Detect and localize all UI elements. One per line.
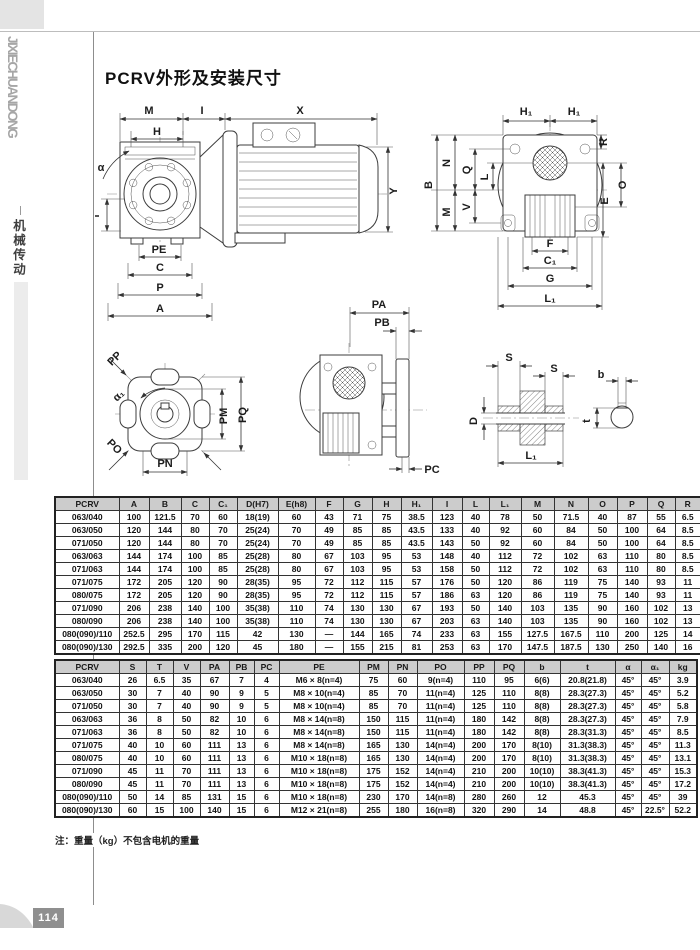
column-header: O — [588, 497, 617, 511]
page-number-badge: 114 — [33, 908, 64, 928]
value-cell: 120 — [489, 589, 521, 602]
value-cell: 95 — [372, 563, 401, 576]
value-cell: 84 — [554, 524, 588, 537]
value-cell: 72 — [315, 589, 343, 602]
value-cell: 50 — [462, 537, 489, 550]
value-cell: 36 — [119, 713, 146, 726]
value-cell: 125 — [647, 628, 675, 641]
value-cell: 90 — [588, 615, 617, 628]
value-cell: 90 — [200, 700, 229, 713]
value-cell: 16 — [675, 641, 700, 655]
value-cell: 3.9 — [669, 674, 697, 687]
value-cell: 102 — [647, 602, 675, 615]
value-cell: 115 — [388, 713, 417, 726]
value-cell: 100 — [181, 563, 209, 576]
value-cell: 210 — [464, 778, 494, 791]
dim-label-n: N — [441, 159, 453, 167]
technical-drawings: M I X H α T Y PE C P A — [95, 95, 700, 495]
value-cell: 60 — [209, 511, 237, 524]
value-cell: — — [315, 641, 343, 655]
value-cell: 200 — [464, 739, 494, 752]
value-cell: 165 — [359, 739, 388, 752]
value-cell: 180 — [278, 641, 315, 655]
model-cell: 071/050 — [55, 700, 119, 713]
table-row: 080(090)/130292.533520012045180—15521581… — [55, 641, 700, 655]
value-cell: 130 — [372, 602, 401, 615]
value-cell: 174 — [149, 550, 181, 563]
value-cell: 13 — [229, 765, 254, 778]
value-cell: M8 × 14(n=8) — [279, 726, 359, 739]
front-view-drawing: M I X H α T Y PE C P A — [95, 105, 400, 321]
table-row: 080(090)/1306015100140156M12 × 21(n=8)25… — [55, 804, 697, 818]
value-cell: 14(n=8) — [417, 791, 464, 804]
model-cell: 063/040 — [55, 511, 119, 524]
value-cell: 152 — [388, 765, 417, 778]
value-cell: 110 — [588, 628, 617, 641]
value-cell: 130 — [388, 752, 417, 765]
value-cell: 155 — [343, 641, 372, 655]
dim-label-m: M — [144, 105, 153, 117]
value-cell: 8(8) — [524, 700, 560, 713]
value-cell: 45° — [615, 778, 641, 791]
side-view-drawing: H₁ H₁ B N M Q V L R E O — [423, 106, 629, 310]
value-cell: 13 — [229, 752, 254, 765]
value-cell: 140 — [489, 602, 521, 615]
value-cell: 45° — [641, 674, 669, 687]
value-cell: 110 — [464, 674, 494, 687]
value-cell: 45° — [615, 765, 641, 778]
value-cell: 115 — [372, 576, 401, 589]
value-cell: 5 — [254, 700, 279, 713]
value-cell: 170 — [489, 641, 521, 655]
value-cell: 92 — [489, 524, 521, 537]
value-cell: 12 — [524, 791, 560, 804]
value-cell: 260 — [494, 791, 524, 804]
dim-label-pa: PA — [372, 299, 387, 311]
value-cell: 15.3 — [669, 765, 697, 778]
value-cell: 160 — [617, 615, 647, 628]
value-cell: 6 — [254, 778, 279, 791]
page-title: PCRV外形及安装尺寸 — [105, 64, 282, 89]
value-cell: 40 — [462, 511, 489, 524]
value-cell: 70 — [181, 511, 209, 524]
value-cell: 140 — [181, 615, 209, 628]
value-cell: 187.5 — [554, 641, 588, 655]
value-cell: 74 — [315, 602, 343, 615]
value-cell: 144 — [119, 563, 149, 576]
value-cell: 11(n=4) — [417, 713, 464, 726]
dim-label-v: V — [461, 203, 473, 211]
value-cell: 130 — [588, 641, 617, 655]
value-cell: 82 — [200, 713, 229, 726]
value-cell: 40 — [588, 511, 617, 524]
mount-flange-drawing: PP α₁ PO PN PM PQ — [104, 349, 249, 476]
value-cell: 72 — [521, 550, 554, 563]
value-cell: 142 — [494, 713, 524, 726]
value-cell: 63 — [462, 628, 489, 641]
value-cell: 38.5 — [401, 511, 432, 524]
dim-label-po: PO — [104, 437, 124, 457]
value-cell: 67 — [315, 550, 343, 563]
value-cell: 111 — [200, 752, 229, 765]
model-cell: 071/063 — [55, 563, 119, 576]
table-row: 071/0751722051209028(35)9572112115571765… — [55, 576, 700, 589]
dim-label-e: E — [599, 197, 611, 204]
value-cell: 5.8 — [669, 700, 697, 713]
dimension-table-1: PCRVABCC₁D(H7)E(h8)FGHH₁ILL₁MNOPQR063/04… — [54, 496, 700, 655]
model-cell: 063/063 — [55, 713, 119, 726]
table-row: 080/09020623814010035(38)110741301306720… — [55, 615, 700, 628]
value-cell: 172 — [119, 576, 149, 589]
value-cell: 335 — [149, 641, 181, 655]
value-cell: 57 — [401, 589, 432, 602]
dim-label-pc: PC — [424, 464, 439, 476]
dim-label-c: C — [156, 262, 164, 274]
value-cell: 120 — [119, 524, 149, 537]
dim-label-m2: M — [441, 207, 453, 216]
dim-label-pp: PP — [105, 349, 124, 368]
value-cell: 11(n=4) — [417, 726, 464, 739]
table-row: 071/075401060111136M8 × 14(n=8)16513014(… — [55, 739, 697, 752]
value-cell: 40 — [462, 550, 489, 563]
value-cell: 28(35) — [237, 589, 278, 602]
value-cell: 39 — [669, 791, 697, 804]
model-cell: 063/040 — [55, 674, 119, 687]
column-header: PC — [254, 660, 279, 674]
value-cell: 172 — [119, 589, 149, 602]
dim-label-s-right: S — [550, 363, 557, 375]
dim-label-pb: PB — [374, 317, 389, 329]
value-cell: 6.5 — [146, 674, 173, 687]
value-cell: 60 — [173, 752, 200, 765]
value-cell: 28.3(27.3) — [560, 713, 615, 726]
column-header: α — [615, 660, 641, 674]
table-row: 080(090)/110501485131156M10 × 18(n=8)230… — [55, 791, 697, 804]
value-cell: 8.5 — [675, 524, 700, 537]
value-cell: 100 — [209, 602, 237, 615]
value-cell: 49 — [315, 524, 343, 537]
value-cell: 85 — [173, 791, 200, 804]
value-cell: 100 — [173, 804, 200, 818]
value-cell: — — [315, 628, 343, 641]
value-cell: 60 — [521, 537, 554, 550]
value-cell: 133 — [432, 524, 462, 537]
model-cell: 063/050 — [55, 687, 119, 700]
value-cell: 86 — [521, 589, 554, 602]
value-cell: 45 — [119, 765, 146, 778]
value-cell: 206 — [119, 615, 149, 628]
value-cell: 45° — [615, 700, 641, 713]
value-cell: 50 — [119, 791, 146, 804]
value-cell: 11.3 — [669, 739, 697, 752]
value-cell: 50 — [462, 563, 489, 576]
value-cell: 147.5 — [521, 641, 554, 655]
value-cell: 28.3(27.3) — [560, 687, 615, 700]
value-cell: 253 — [432, 641, 462, 655]
dim-label-l: L — [479, 173, 491, 180]
value-cell: 45° — [615, 674, 641, 687]
dim-label-h1-right: H₁ — [568, 106, 581, 118]
column-header: H — [372, 497, 401, 511]
table-row: 080(090)/110252.529517011542130—14416574… — [55, 628, 700, 641]
value-cell: 10 — [146, 739, 173, 752]
value-cell: 120 — [489, 576, 521, 589]
model-cell: 071/050 — [55, 537, 119, 550]
value-cell: 35(38) — [237, 615, 278, 628]
top-rule — [0, 31, 700, 32]
value-cell: 123 — [432, 511, 462, 524]
value-cell: 14(n=4) — [417, 778, 464, 791]
value-cell: 8 — [146, 726, 173, 739]
value-cell: 75 — [359, 674, 388, 687]
value-cell: 193 — [432, 602, 462, 615]
value-cell: 170 — [494, 752, 524, 765]
value-cell: 35 — [173, 674, 200, 687]
dim-label-pe: PE — [152, 244, 167, 256]
value-cell: 40 — [119, 752, 146, 765]
column-header: Q — [647, 497, 675, 511]
value-cell: 81 — [401, 641, 432, 655]
value-cell: 95 — [278, 589, 315, 602]
value-cell: 250 — [617, 641, 647, 655]
value-cell: M8 × 14(n=8) — [279, 739, 359, 752]
header-row: PCRVABCC₁D(H7)E(h8)FGHH₁ILL₁MNOPQR — [55, 497, 700, 511]
value-cell: 5 — [254, 687, 279, 700]
value-cell: 93 — [647, 589, 675, 602]
value-cell: 63 — [462, 641, 489, 655]
value-cell: 50 — [521, 511, 554, 524]
table-row: 080/090451170111136M10 × 18(n=8)17515214… — [55, 778, 697, 791]
model-cell: 063/050 — [55, 524, 119, 537]
value-cell: 180 — [464, 713, 494, 726]
value-cell: 115 — [209, 628, 237, 641]
value-cell: 53 — [401, 563, 432, 576]
value-cell: 13 — [229, 739, 254, 752]
value-cell: 144 — [149, 524, 181, 537]
value-cell: 36 — [119, 726, 146, 739]
value-cell: 135 — [554, 615, 588, 628]
value-cell: 148 — [432, 550, 462, 563]
value-cell: 28(35) — [237, 576, 278, 589]
value-cell: 70 — [209, 537, 237, 550]
value-cell: 10(10) — [524, 765, 560, 778]
value-cell: 110 — [278, 602, 315, 615]
value-cell: 82 — [200, 726, 229, 739]
model-cell: 080(090)/130 — [55, 641, 119, 655]
column-header: kg — [669, 660, 697, 674]
value-cell: 26 — [119, 674, 146, 687]
model-cell: 071/063 — [55, 726, 119, 739]
value-cell: 102 — [554, 550, 588, 563]
value-cell: 9 — [229, 700, 254, 713]
value-cell: M10 × 18(n=8) — [279, 778, 359, 791]
value-cell: 11(n=4) — [417, 687, 464, 700]
value-cell: 142 — [494, 726, 524, 739]
table-row: 063/050120144807025(24)7049858543.513340… — [55, 524, 700, 537]
value-cell: 200 — [464, 752, 494, 765]
value-cell: 38.3(41.3) — [560, 778, 615, 791]
model-cell: 080/090 — [55, 778, 119, 791]
table-row: 063/0631441741008525(28)8067103955314840… — [55, 550, 700, 563]
output-side-drawing: PA PB PC — [300, 299, 440, 476]
value-cell: 50 — [173, 726, 200, 739]
value-cell: 119 — [554, 589, 588, 602]
model-cell: 071/090 — [55, 765, 119, 778]
value-cell: 67 — [315, 563, 343, 576]
value-cell: 15 — [229, 791, 254, 804]
value-cell: 60 — [521, 524, 554, 537]
value-cell: 176 — [432, 576, 462, 589]
value-cell: 14(n=4) — [417, 765, 464, 778]
value-cell: 80 — [278, 563, 315, 576]
dim-label-alpha: α — [98, 162, 105, 174]
value-cell: 14 — [524, 804, 560, 818]
value-cell: 8.5 — [675, 537, 700, 550]
value-cell: 43.5 — [401, 537, 432, 550]
value-cell: 175 — [359, 778, 388, 791]
column-header: PCRV — [55, 660, 119, 674]
column-header: PE — [279, 660, 359, 674]
model-cell: 071/090 — [55, 602, 119, 615]
value-cell: 200 — [181, 641, 209, 655]
value-cell: 115 — [372, 589, 401, 602]
value-cell: 13 — [675, 602, 700, 615]
value-cell: 63 — [462, 615, 489, 628]
value-cell: 75 — [588, 589, 617, 602]
dimension-table-2: PCRVSTVPAPBPCPEPMPNPOPPPQbtαα₁kg063/0402… — [54, 659, 698, 818]
value-cell: 50 — [462, 576, 489, 589]
value-cell: 70 — [278, 537, 315, 550]
value-cell: 200 — [494, 778, 524, 791]
model-cell: 080(090)/110 — [55, 628, 119, 641]
value-cell: 233 — [432, 628, 462, 641]
value-cell: 255 — [359, 804, 388, 818]
value-cell: 45° — [615, 804, 641, 818]
value-cell: 100 — [617, 537, 647, 550]
value-cell: 80 — [647, 563, 675, 576]
value-cell: 150 — [359, 726, 388, 739]
value-cell: 70 — [388, 700, 417, 713]
model-cell: 080/090 — [55, 615, 119, 628]
value-cell: 150 — [359, 713, 388, 726]
value-cell: 11 — [146, 778, 173, 791]
value-cell: 8.5 — [675, 550, 700, 563]
value-cell: 175 — [359, 765, 388, 778]
dim-label-c1: C₁ — [544, 255, 557, 267]
value-cell: 140 — [617, 576, 647, 589]
column-header: P — [617, 497, 647, 511]
value-cell: 15 — [229, 804, 254, 818]
value-cell: 85 — [209, 550, 237, 563]
dim-label-g: G — [546, 273, 555, 285]
value-cell: M10 × 18(n=8) — [279, 752, 359, 765]
value-cell: 111 — [200, 739, 229, 752]
corner-block — [0, 0, 44, 29]
dim-label-a: A — [156, 303, 164, 315]
dim-label-d: D — [468, 417, 480, 425]
table-row: 063/0633685082106M8 × 14(n=8)15011511(n=… — [55, 713, 697, 726]
value-cell: 110 — [494, 700, 524, 713]
value-cell: 320 — [464, 804, 494, 818]
column-header: L₁ — [489, 497, 521, 511]
value-cell: 7 — [229, 674, 254, 687]
value-cell: 60 — [388, 674, 417, 687]
dim-label-f: F — [547, 238, 554, 250]
value-cell: 70 — [173, 778, 200, 791]
value-cell: 45.3 — [560, 791, 615, 804]
value-cell: 85 — [372, 524, 401, 537]
value-cell: 67 — [401, 602, 432, 615]
value-cell: 74 — [401, 628, 432, 641]
value-cell: 60 — [173, 739, 200, 752]
value-cell: 7 — [146, 700, 173, 713]
value-cell: 25(28) — [237, 550, 278, 563]
value-cell: 4 — [254, 674, 279, 687]
dim-label-l1-shaft: L₁ — [525, 450, 537, 462]
value-cell: 110 — [617, 563, 647, 576]
table-row: 063/050307409095M8 × 10(n=4)857011(n=4)1… — [55, 687, 697, 700]
value-cell: 158 — [432, 563, 462, 576]
value-cell: 70 — [209, 524, 237, 537]
value-cell: 120 — [209, 641, 237, 655]
column-header: N — [554, 497, 588, 511]
column-header: H₁ — [401, 497, 432, 511]
value-cell: 87 — [617, 511, 647, 524]
column-header: I — [432, 497, 462, 511]
value-cell: 40 — [462, 524, 489, 537]
value-cell: 45° — [641, 765, 669, 778]
value-cell: 9(n=4) — [417, 674, 464, 687]
value-cell: 45° — [615, 713, 641, 726]
table-row: 071/0631441741008525(28)8067103955315850… — [55, 563, 700, 576]
value-cell: 13 — [675, 615, 700, 628]
value-cell: 152 — [388, 778, 417, 791]
value-cell: 165 — [359, 752, 388, 765]
value-cell: 127.5 — [521, 628, 554, 641]
category-tick — [20, 206, 21, 215]
value-cell: M10 × 18(n=8) — [279, 791, 359, 804]
value-cell: 135 — [554, 602, 588, 615]
column-header: t — [560, 660, 615, 674]
value-cell: 110 — [494, 687, 524, 700]
value-cell: 80 — [181, 537, 209, 550]
column-header: B — [149, 497, 181, 511]
value-cell: 45° — [641, 752, 669, 765]
table-row: 080/0751722051209028(35)9572112115571866… — [55, 589, 700, 602]
value-cell: 28.3(31.3) — [560, 726, 615, 739]
value-cell: 102 — [647, 615, 675, 628]
value-cell: 140 — [617, 589, 647, 602]
value-cell: 90 — [209, 589, 237, 602]
value-cell: M10 × 18(n=8) — [279, 765, 359, 778]
value-cell: 75 — [588, 576, 617, 589]
dim-label-pn: PN — [157, 458, 172, 470]
value-cell: 6 — [254, 713, 279, 726]
column-header: C₁ — [209, 497, 237, 511]
value-cell: 85 — [372, 537, 401, 550]
dim-label-p: P — [156, 282, 163, 294]
value-cell: 92 — [489, 537, 521, 550]
value-cell: 80 — [181, 524, 209, 537]
value-cell: 130 — [343, 602, 372, 615]
value-cell: 55 — [647, 511, 675, 524]
value-cell: 121.5 — [149, 511, 181, 524]
value-cell: 6 — [254, 726, 279, 739]
value-cell: 280 — [464, 791, 494, 804]
value-cell: 60 — [119, 804, 146, 818]
column-header: T — [146, 660, 173, 674]
value-cell: 206 — [119, 602, 149, 615]
